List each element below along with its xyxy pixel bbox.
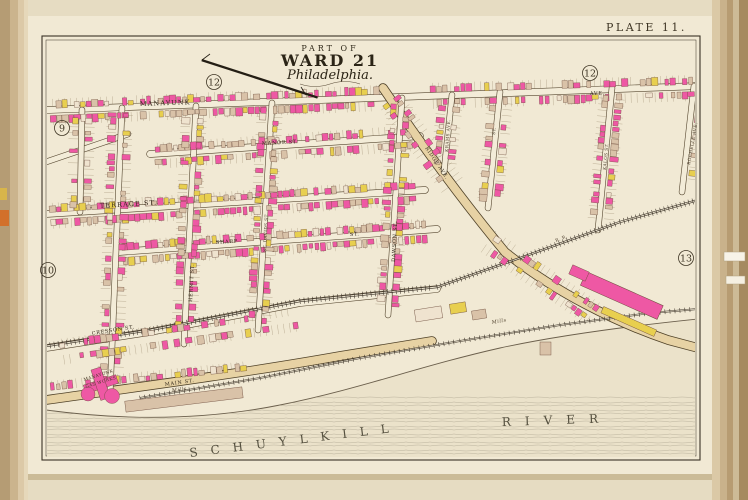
plate-ref-north-east: 12 bbox=[584, 69, 596, 80]
street-label-ave-suffix: AVE. bbox=[589, 90, 605, 97]
bookmark-tab-yellow bbox=[0, 188, 7, 200]
plate-number-label: PLATE 11. bbox=[606, 21, 687, 34]
plate-ref-south-west: 10 bbox=[42, 266, 54, 277]
street-label-st: ST. bbox=[492, 127, 498, 135]
map-title: PART OF WARD 21 Philadelphia. bbox=[280, 44, 379, 87]
paper-slip bbox=[724, 252, 745, 261]
street-label-sharp-st: ST. bbox=[350, 231, 360, 238]
plate-ref-west: 9 bbox=[59, 124, 65, 135]
atlas-photo: PLATE 11. PART OF WARD 21 Philadelphia. … bbox=[0, 0, 748, 500]
wharf-building bbox=[540, 342, 551, 355]
paper-slip bbox=[726, 276, 745, 284]
bookmark-tab-orange bbox=[0, 210, 9, 226]
gas-holder bbox=[105, 389, 120, 404]
title-city: Philadelphia. bbox=[286, 68, 373, 83]
plate-ref-east: 13 bbox=[680, 254, 692, 265]
plate-ref-north-west: 12 bbox=[208, 78, 220, 89]
mill-building bbox=[471, 309, 486, 320]
